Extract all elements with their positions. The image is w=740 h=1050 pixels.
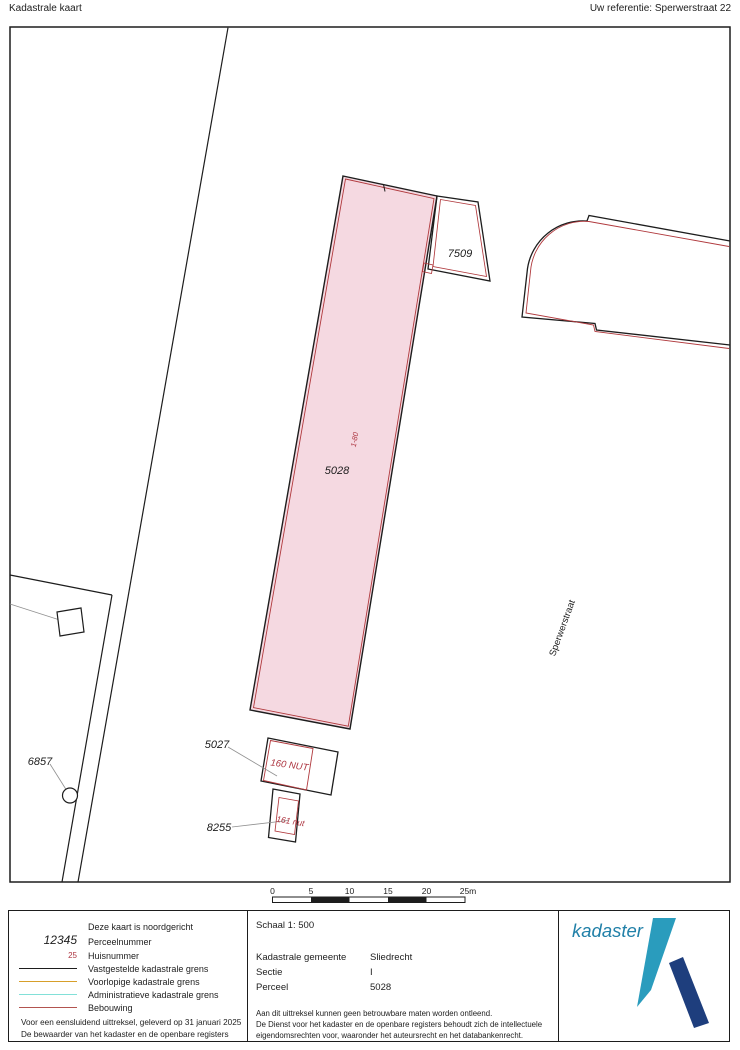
legend-symbol-administrative-boundary — [19, 994, 77, 995]
legend-divider-1 — [247, 911, 248, 1041]
legend-symbol-established-boundary — [19, 968, 77, 969]
legend-label-administrative-boundary: Administratieve kadastrale grens — [88, 990, 219, 1000]
label-parcel-6857: 6857 — [28, 756, 53, 768]
scalebar-segment-dark-2 — [388, 897, 427, 903]
label-parcel-7509: 7509 — [448, 248, 472, 260]
kadaster-logo-text: kadaster — [572, 920, 644, 941]
legend-label-provisional-boundary: Voorlopige kadastrale grens — [88, 977, 200, 987]
label-parcel-8255: 8255 — [207, 822, 232, 834]
scalebar-tick-15: 15 — [383, 886, 393, 896]
point-marker-6857 — [63, 788, 78, 803]
legend-symbol-provisional-boundary — [19, 981, 77, 982]
cadastral-map: 0 5 10 15 20 25m 7509 5028 5027 8255 685… — [0, 0, 740, 1050]
legend-footer-middle-1: Aan dit uittreksel kunnen geen betrouwba… — [256, 1009, 492, 1018]
scale-text: Schaal 1: 500 — [256, 920, 314, 931]
field-label-sectie: Sectie — [256, 967, 282, 978]
legend-label-parcel-number: Perceelnummer — [88, 937, 152, 947]
kadastrale-kaart-page: Kadastrale kaart Uw referentie: Sperwers… — [0, 0, 740, 1050]
legend-symbol-building — [19, 1007, 77, 1008]
kadaster-logo-stroke — [669, 957, 709, 1028]
scalebar-tick-5: 5 — [309, 886, 314, 896]
legend-footer-middle-3: eigendomsrechten voor, waaronder het aut… — [256, 1031, 523, 1040]
field-label-perceel: Perceel — [256, 982, 288, 993]
field-label-gemeente: Kadastrale gemeente — [256, 952, 346, 963]
scalebar-tick-0: 0 — [270, 886, 275, 896]
legend-footer-left-2: De bewaarder van het kadaster en de open… — [21, 1030, 229, 1039]
scalebar-tick-10: 10 — [345, 886, 355, 896]
kadaster-logo: kadaster — [558, 910, 732, 1042]
legend-footer-left-1: Voor een eensluidend uittreksel, gelever… — [21, 1018, 241, 1027]
legend-footer-middle-2: De Dienst voor het kadaster en de openba… — [256, 1020, 542, 1029]
scalebar-ticks: 0 5 10 15 20 25m — [270, 886, 476, 896]
scalebar-frame — [273, 897, 466, 903]
legend-label-building: Bebouwing — [88, 1003, 133, 1013]
field-value-sectie: I — [370, 967, 373, 978]
scalebar-tick-25m: 25m — [460, 886, 477, 896]
small-structure-shape — [57, 608, 84, 636]
label-parcel-5028: 5028 — [325, 465, 350, 477]
field-value-perceel: 5028 — [370, 982, 391, 993]
north-note: Deze kaart is noordgericht — [88, 922, 193, 932]
field-value-gemeente: Sliedrecht — [370, 952, 412, 963]
scalebar-tick-20: 20 — [422, 886, 432, 896]
legend-symbol-parcel-number: 12345 — [19, 933, 77, 947]
label-parcel-5027: 5027 — [205, 739, 230, 751]
legend-label-established-boundary: Vastgestelde kadastrale grens — [88, 964, 208, 974]
legend-label-house-number: Huisnummer — [88, 951, 139, 961]
scalebar-segment-dark-1 — [311, 897, 350, 903]
legend-symbol-house-number: 25 — [19, 951, 77, 960]
